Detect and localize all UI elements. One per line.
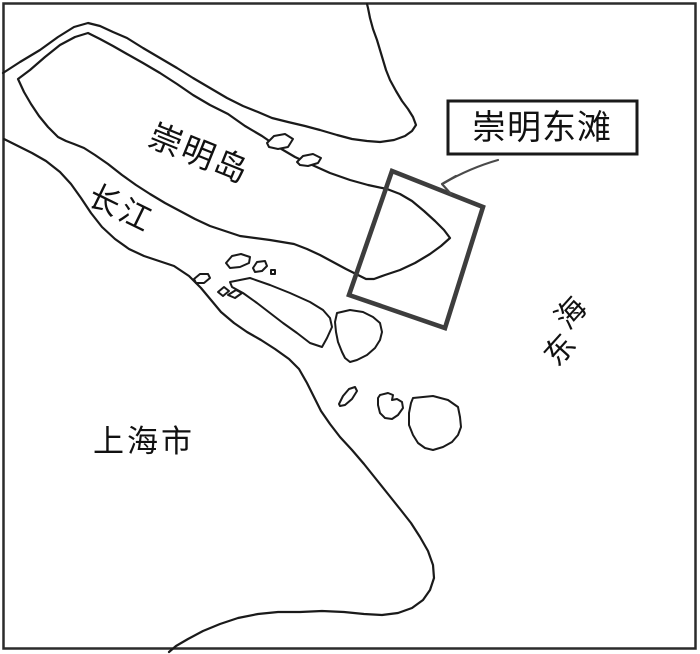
label-shanghai-city: 上海市 <box>93 424 195 460</box>
shoal-mouth-1 <box>339 387 357 406</box>
islet-north-channel-1 <box>267 134 293 149</box>
estuary-map-figure: 崇明东滩 崇明岛 长江 上海市 东 海 <box>0 0 700 654</box>
south-bank-coastline <box>4 139 434 652</box>
islet-river-3 <box>194 274 210 283</box>
shoal-mouth-3 <box>409 396 461 450</box>
hengsha-island-outline <box>335 310 382 362</box>
callout-label: 崇明东滩 <box>472 108 612 148</box>
islet-river-2 <box>253 261 267 272</box>
label-east-sea-char-1: 东 <box>537 327 583 373</box>
north-bank-coastline <box>3 4 416 142</box>
islet-river-1 <box>226 254 250 268</box>
islet-river-dot <box>271 270 275 274</box>
leader-arrow <box>444 160 498 183</box>
label-yangtze-river: 长江 <box>83 178 160 240</box>
shoal-mouth-2 <box>378 393 403 419</box>
islet-north-channel-2 <box>297 154 321 166</box>
label-chongming-island: 崇明岛 <box>143 116 255 191</box>
study-area-box <box>349 171 483 328</box>
map-canvas: 崇明东滩 崇明岛 长江 上海市 东 海 <box>0 0 700 654</box>
changxing-island-outline <box>230 278 332 347</box>
